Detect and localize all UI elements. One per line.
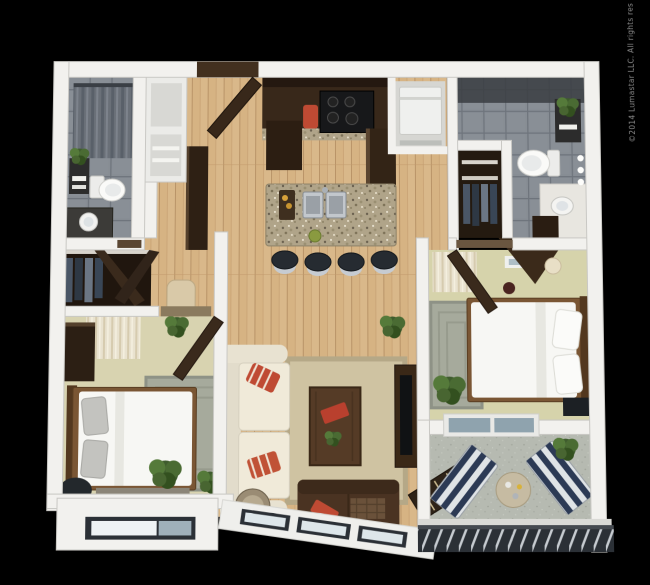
faucet (322, 187, 328, 193)
shelf (400, 140, 442, 145)
patio-table (496, 472, 531, 507)
wall (50, 306, 159, 316)
towel (72, 176, 86, 181)
vanity-1 (66, 208, 113, 238)
shower-rod (74, 83, 138, 87)
washer-dryer (400, 87, 442, 134)
tv (400, 375, 413, 455)
pantry-cabinet (266, 121, 302, 171)
wall (416, 238, 429, 420)
coffee-table (310, 387, 361, 465)
bedroom2-threshold (456, 240, 512, 248)
cabinet-shadow (262, 77, 395, 87)
vanity2-lights (577, 155, 584, 185)
wall (213, 232, 228, 494)
wall (144, 182, 157, 238)
bedroom1-threshold (161, 306, 211, 316)
entry-threshold (197, 62, 259, 78)
dresser (64, 322, 95, 381)
wall-top (54, 62, 598, 78)
wall (447, 77, 458, 250)
laundry-nook (388, 77, 452, 154)
bedroom1-closet (60, 250, 159, 306)
towel (72, 185, 86, 189)
balcony-window (444, 414, 540, 437)
coffee-maker (303, 105, 318, 129)
wall (448, 238, 456, 250)
nightstand (563, 398, 590, 416)
wall (458, 140, 502, 150)
wall (131, 77, 146, 238)
walk-in-closet (458, 150, 503, 238)
balcony-railing (418, 519, 614, 552)
wall (501, 140, 512, 238)
bowl (309, 230, 321, 242)
toilet-2 (518, 150, 560, 176)
bed-2 (467, 296, 591, 404)
vanity-2 (532, 184, 587, 238)
wall (417, 420, 430, 529)
bedroom1-window (85, 517, 195, 540)
floorplan-render: ©2014 Lumastar LLC. All rights reserved. (0, 0, 650, 585)
stove (320, 91, 374, 132)
shower-curtain (72, 85, 137, 158)
tv-console (395, 365, 418, 467)
bath1-threshold (117, 240, 141, 248)
floorplan-scene: ©2014 Lumastar LLC. All rights reserved. (0, 3, 650, 585)
lamp (545, 258, 561, 274)
kitchen-island (266, 184, 396, 246)
